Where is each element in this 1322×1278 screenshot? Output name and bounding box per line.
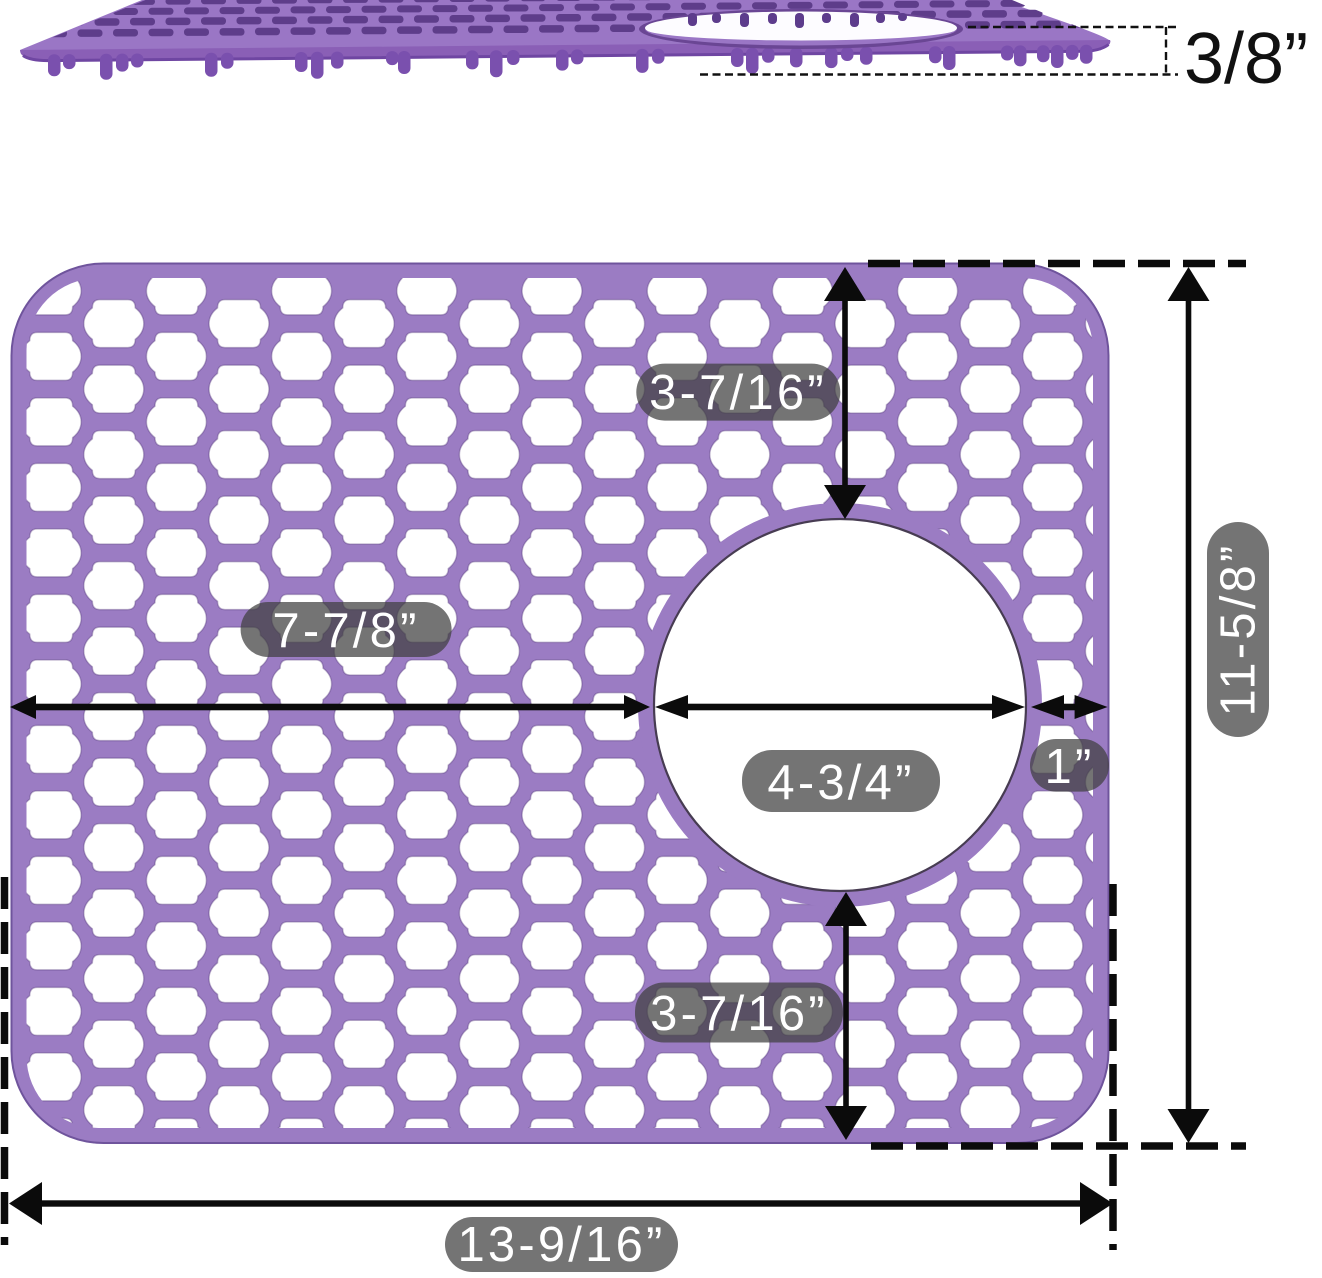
svg-text:3/8”: 3/8” [1184, 19, 1308, 99]
svg-text:11-5/8”: 11-5/8” [1212, 542, 1266, 716]
svg-text:4-3/4”: 4-3/4” [767, 756, 914, 810]
svg-text:1”: 1” [1045, 740, 1095, 794]
svg-text:3-7/16”: 3-7/16” [650, 987, 828, 1041]
svg-text:3-7/16”: 3-7/16” [649, 366, 827, 420]
svg-text:7-7/8”: 7-7/8” [272, 604, 419, 658]
svg-text:13-9/16”: 13-9/16” [457, 1218, 665, 1272]
